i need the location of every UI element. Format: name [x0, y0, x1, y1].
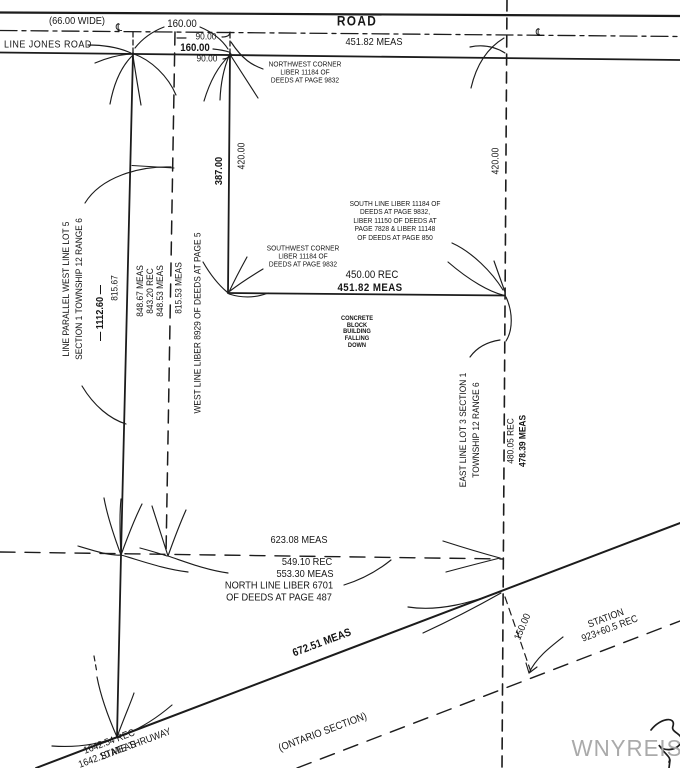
curve-d1 — [203, 262, 227, 292]
dim-387-label: 387.00 — [214, 157, 226, 185]
centerline-icon: ℄ — [116, 22, 122, 34]
frontage-160-bold-label: 160.00 — [180, 42, 210, 54]
east-lot-line-dashed — [502, 0, 507, 768]
north-line-6701-dashed — [0, 552, 503, 559]
northwest-corner-note: NORTHWEST CORNER LIBER 11184 OF DEEDS AT… — [269, 60, 342, 83]
south-450-rec-label: 450.00 REC — [346, 269, 399, 281]
curve-f2 — [446, 558, 500, 572]
dim-549-rec-label: 549.10 REC — [282, 557, 332, 569]
curve-i5 — [121, 555, 188, 572]
curve-b9 — [213, 49, 229, 52]
curve-b3 — [220, 56, 229, 100]
north-line-note-leader — [344, 560, 391, 585]
curve-b2 — [231, 56, 258, 98]
building-note: CONCRETE BLOCK BUILDING FALLING DOWN — [341, 316, 373, 350]
survey-plat: ROAD (66.00 WIDE) 451.82 MEAS LINE JONES… — [0, 0, 680, 768]
curve-i7 — [168, 510, 186, 556]
road-meas-label: 451.82 MEAS — [345, 37, 402, 49]
thruway-corner-stub — [94, 656, 97, 673]
curve-e2 — [494, 261, 505, 292]
road-centerline — [0, 31, 680, 37]
curve-i6 — [152, 506, 168, 556]
curve-a2 — [133, 56, 141, 105]
south-line-deeds-note: SOUTH LINE LIBER 11184 OF DEEDS AT PAGE … — [350, 200, 441, 242]
road-width-note: (66.00 WIDE) — [49, 16, 105, 28]
curve-c1 — [471, 38, 504, 88]
curve-k2 — [82, 386, 126, 424]
dim-478-meas-label: 478.39 MEAS — [519, 415, 530, 467]
curve-a3 — [95, 54, 131, 63]
west-boundary-line — [117, 53, 133, 737]
parallel-line-note: LINE PARALLEL WEST LINE LOT 5 SECTION 1 … — [60, 218, 86, 360]
dim-420-west-label: 420.00 — [236, 143, 247, 170]
curve-e3 — [506, 297, 511, 341]
curve-g2 — [423, 593, 501, 633]
dim-1112-label: — 1112.60 — — [95, 285, 107, 341]
curve-f1 — [443, 541, 500, 558]
leader-curves — [52, 27, 563, 746]
wnyreis-watermark: WNYREIS — [572, 736, 680, 762]
east-line-note-leader — [470, 340, 500, 357]
centerline-icon: ℄ — [536, 27, 542, 39]
curve-d2 — [229, 257, 247, 292]
west-meas-stack: 848.67 MEAS 843.20 REC 848.53 MEAS — [136, 265, 166, 317]
southwest-corner-note: SOUTHWEST CORNER LIBER 11184 OF DEEDS AT… — [267, 244, 339, 267]
curve-b5 — [135, 27, 164, 48]
south-451-meas-label: 451.82 MEAS — [337, 282, 402, 294]
curve-a4 — [134, 54, 176, 95]
dim-623-label: 623.08 MEAS — [270, 535, 327, 547]
jones-road-label: LINE JONES ROAD — [4, 40, 92, 51]
north-line-6701-note: NORTH LINE LIBER 6701 OF DEEDS AT PAGE 4… — [225, 581, 333, 604]
segment-90-bottom-label: 90.00 — [197, 55, 218, 66]
road-title: ROAD — [337, 13, 377, 28]
jones-road-leader — [88, 45, 131, 53]
dim-815-67-label: 815.67 — [111, 275, 122, 301]
plat-linework — [0, 0, 680, 768]
dim-815-53-label: 815.53 MEAS — [175, 262, 186, 314]
curve-j1 — [97, 677, 117, 737]
frontage-160-top-label: 160.00 — [167, 18, 197, 30]
west-line-8929-label: WEST LINE LIBER 8929 OF DEEDS AT PAGE 5 — [194, 232, 205, 413]
dim-480-rec-label: 480.05 REC — [507, 418, 518, 464]
curve-i1 — [104, 498, 121, 555]
curve-k1 — [85, 167, 171, 203]
curve-i3 — [121, 504, 142, 555]
parcel-west-line — [228, 53, 230, 293]
curve-g1 — [408, 592, 500, 608]
dim-420-east-label: 420.00 — [490, 148, 501, 175]
east-line-lot3-note: EAST LINE LOT 3 SECTION 1 TOWNSHIP 12 RA… — [457, 373, 483, 487]
curve-a1 — [110, 56, 132, 104]
